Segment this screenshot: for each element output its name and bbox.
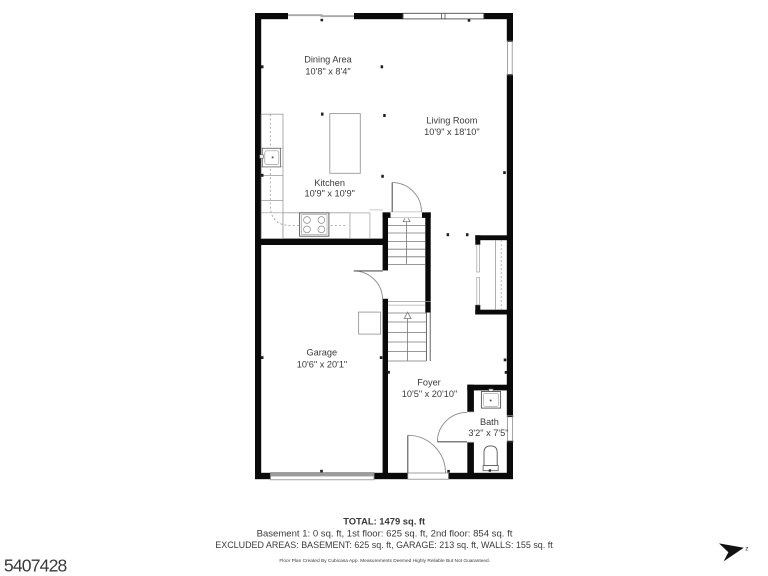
svg-text:10'8" x 8'4": 10'8" x 8'4": [305, 67, 350, 77]
svg-text:Living Room: Living Room: [426, 116, 477, 126]
svg-text:z: z: [745, 546, 748, 553]
svg-text:TOTAL: 1479 sq. ft: TOTAL: 1479 sq. ft: [343, 516, 425, 527]
svg-text:Dining Area: Dining Area: [304, 54, 352, 64]
svg-text:10'6" x 20'1": 10'6" x 20'1": [297, 360, 347, 370]
svg-text:10'9" x 10'9": 10'9" x 10'9": [305, 189, 355, 199]
svg-text:10'9" x 18'10": 10'9" x 18'10": [424, 127, 480, 137]
svg-text:EXCLUDED AREAS: BASEMENT: 625: EXCLUDED AREAS: BASEMENT: 625 sq. ft, GA…: [215, 540, 553, 550]
svg-text:Basement 1: 0 sq. ft, 1st floo: Basement 1: 0 sq. ft, 1st floor: 625 sq.…: [257, 529, 513, 540]
svg-text:Bath: Bath: [480, 417, 499, 427]
svg-text:5407428: 5407428: [4, 556, 68, 576]
svg-text:Garage: Garage: [306, 347, 337, 357]
svg-text:3'2" x 7'5": 3'2" x 7'5": [468, 428, 508, 438]
svg-text:Kitchen: Kitchen: [314, 178, 345, 188]
svg-text:Floor Plan Created By Cubicasa: Floor Plan Created By Cubicasa App. Meas…: [279, 558, 490, 564]
svg-text:10'5" x 20'10": 10'5" x 20'10": [402, 389, 458, 399]
svg-text:Foyer: Foyer: [417, 378, 441, 388]
